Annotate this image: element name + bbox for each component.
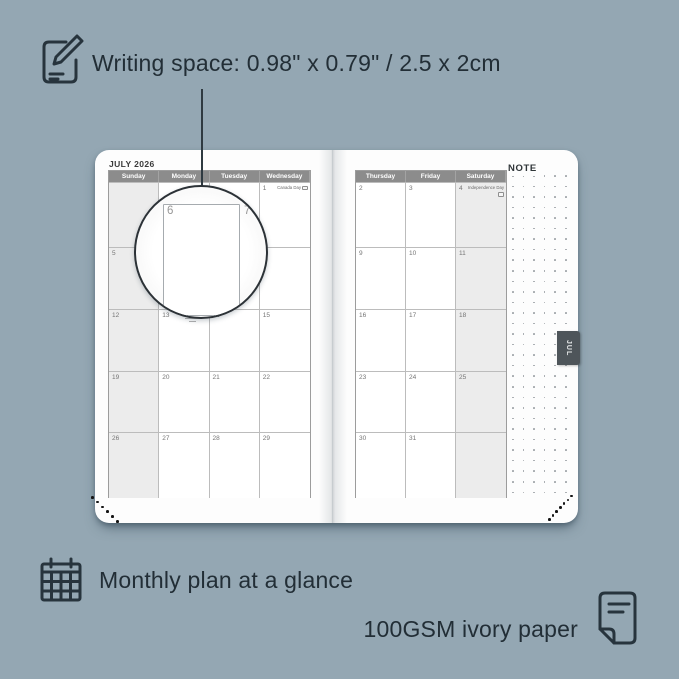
day-number: 26 (112, 435, 158, 442)
day-cell: 25 (456, 371, 506, 432)
day-cell: 18 (456, 309, 506, 371)
pointer-line (201, 89, 203, 187)
monthly-plan-caption: Monthly plan at a glance (99, 567, 353, 594)
paper-caption: 100GSM ivory paper (363, 616, 578, 643)
day-cell: 22 (260, 371, 310, 432)
writing-note-pencil-icon (36, 33, 84, 87)
day-number: 11 (459, 250, 506, 257)
day-number: 21 (213, 374, 259, 381)
day-cell: 1Canada Day (260, 182, 310, 247)
adjacent-day-number: 7 (244, 205, 250, 217)
day-number: 18 (459, 312, 506, 319)
calendar-right-page: ThursdayFridaySaturday234Independence Da… (355, 170, 507, 498)
day-cell: 26 (109, 432, 159, 498)
magnified-day-cell (163, 204, 240, 316)
month-index-tab: JUL (557, 331, 580, 365)
magnified-day-number: 6 (167, 205, 173, 217)
day-cell: 19 (109, 371, 159, 432)
tiny-holiday-smudge (181, 318, 205, 326)
day-number: 24 (409, 374, 455, 381)
day-cell: 10 (406, 247, 456, 309)
holiday-label: Canada Day (270, 185, 308, 191)
day-header: Thursday (356, 171, 406, 182)
day-number: 25 (459, 374, 506, 381)
day-number: 10 (409, 250, 455, 257)
holiday-label: Independence Day (466, 185, 504, 198)
month-tab-label: JUL (565, 340, 572, 356)
day-number: 3 (409, 185, 455, 192)
day-number: 9 (359, 250, 405, 257)
day-header: Sunday (109, 171, 159, 182)
day-number: 29 (263, 435, 310, 442)
magnifier-lens: 6 7 (134, 185, 268, 319)
day-cell: 16 (356, 309, 406, 371)
day-cell: 4Independence Day (456, 182, 506, 247)
day-number: 31 (409, 435, 455, 442)
day-number: 30 (359, 435, 405, 442)
day-number: 15 (263, 312, 310, 319)
day-number: 23 (359, 374, 405, 381)
note-column-label: NOTE (508, 163, 542, 176)
day-number: 8 (263, 250, 310, 257)
calendar-grid-icon (38, 556, 84, 602)
spine-shading (319, 150, 347, 523)
day-cell: 3 (406, 182, 456, 247)
day-cell: 20 (159, 371, 209, 432)
day-header: Saturday (456, 171, 506, 182)
day-number: 19 (112, 374, 158, 381)
day-cell: 11 (456, 247, 506, 309)
writing-space-caption: Writing space: 0.98" x 0.79" / 2.5 x 2cm (92, 50, 501, 77)
day-header: Tuesday (210, 171, 260, 182)
day-number: 12 (112, 312, 158, 319)
day-cell: 24 (406, 371, 456, 432)
day-cell: 9 (356, 247, 406, 309)
day-number: 2 (359, 185, 405, 192)
ivory-paper-icon (596, 591, 638, 645)
day-cell: 21 (210, 371, 260, 432)
holiday-flag-icon (498, 192, 504, 197)
holiday-flag-icon (302, 186, 308, 191)
day-number: 28 (213, 435, 259, 442)
month-title: JULY 2026 (109, 159, 155, 169)
day-cell: 27 (159, 432, 209, 498)
day-cell: 30 (356, 432, 406, 498)
day-cell: 14 (210, 309, 260, 371)
day-cell: 29 (260, 432, 310, 498)
day-number: 17 (409, 312, 455, 319)
day-cell: 28 (210, 432, 260, 498)
day-cell: 12 (109, 309, 159, 371)
day-cell (456, 432, 506, 498)
spine-line (332, 150, 333, 523)
day-header: Friday (406, 171, 456, 182)
day-number: 27 (162, 435, 208, 442)
day-number: 20 (162, 374, 208, 381)
day-cell: 15 (260, 309, 310, 371)
day-number: 22 (263, 374, 310, 381)
day-number: 16 (359, 312, 405, 319)
day-cell: 31 (406, 432, 456, 498)
day-cell: 23 (356, 371, 406, 432)
day-header: Wednesday (260, 171, 310, 182)
day-cell: 2 (356, 182, 406, 247)
product-image: Writing space: 0.98" x 0.79" / 2.5 x 2cm… (0, 0, 679, 679)
day-cell: 17 (406, 309, 456, 371)
